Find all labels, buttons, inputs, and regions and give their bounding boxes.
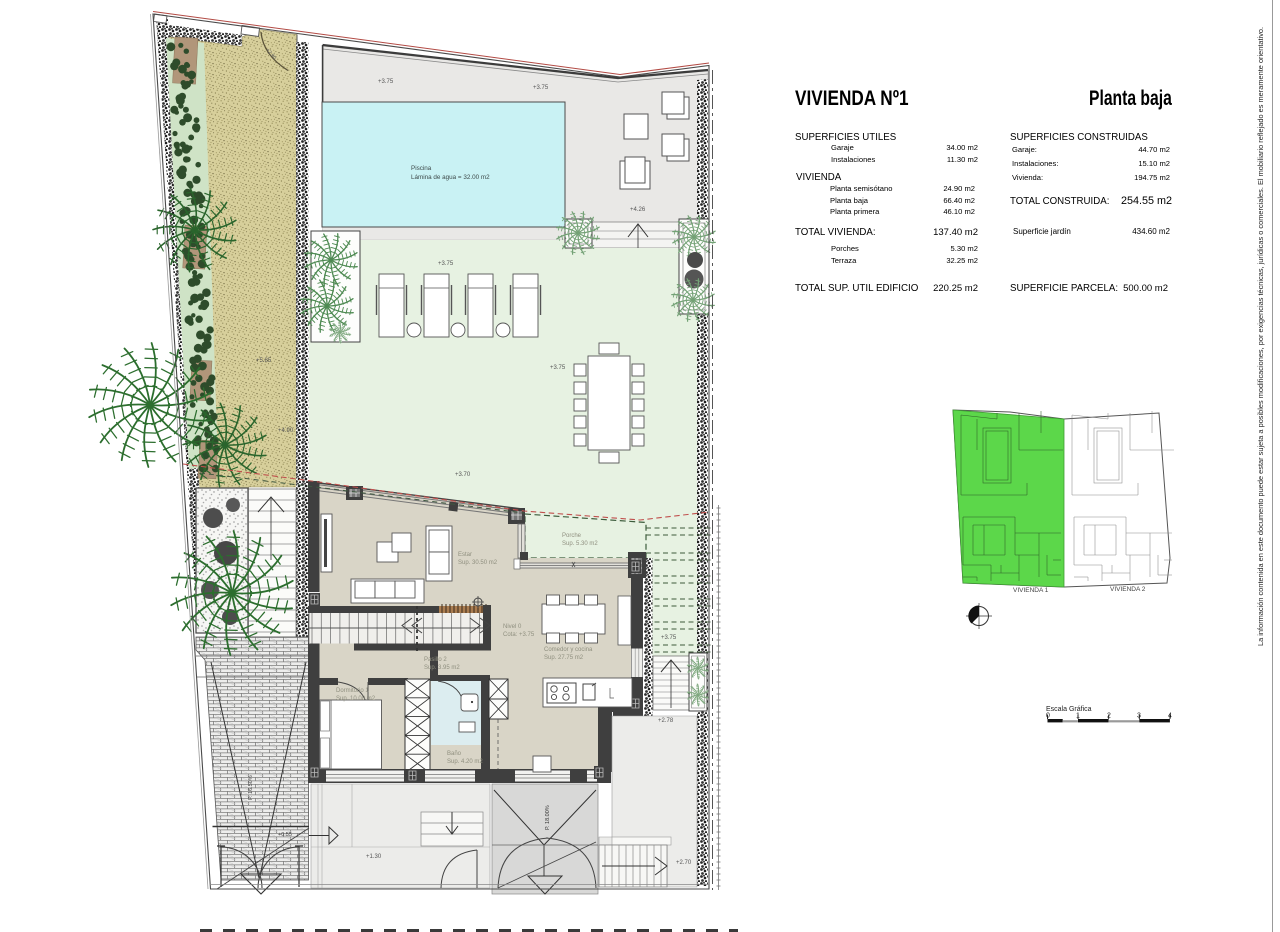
svg-text:VIVIENDA 2: VIVIENDA 2 — [1110, 586, 1146, 593]
svg-text:Superficie jardín: Superficie jardín — [1013, 227, 1071, 236]
svg-text:+3.70: +3.70 — [455, 472, 471, 478]
svg-text:+0.55: +0.55 — [278, 832, 292, 838]
svg-text:Terraza: Terraza — [831, 256, 857, 265]
svg-text:+4.26: +4.26 — [630, 207, 646, 213]
svg-text:Cota: +3.75: Cota: +3.75 — [503, 632, 535, 638]
svg-text:Sup. 3.95 m2: Sup. 3.95 m2 — [424, 665, 460, 671]
svg-text:VIVIENDA: VIVIENDA — [796, 172, 842, 183]
svg-text:+3.75: +3.75 — [550, 365, 566, 371]
svg-text:Garaje: Garaje — [831, 143, 854, 152]
svg-text:46.10 m2: 46.10 m2 — [943, 207, 975, 216]
svg-text:Vivienda:: Vivienda: — [1012, 173, 1043, 182]
svg-text:P. 16.50%: P. 16.50% — [248, 775, 254, 800]
svg-text:Porches: Porches — [831, 244, 859, 253]
svg-text:+1.30: +1.30 — [366, 854, 382, 860]
svg-text:SUPERFICIES CONSTRUIDAS: SUPERFICIES CONSTRUIDAS — [1010, 132, 1148, 143]
svg-text:434.60 m2: 434.60 m2 — [1132, 227, 1170, 236]
svg-text:P. 18.00%: P. 18.00% — [545, 805, 551, 830]
svg-text:5.30 m2: 5.30 m2 — [951, 244, 978, 253]
svg-text:Sup. 27.75 m2: Sup. 27.75 m2 — [544, 655, 584, 661]
svg-text:TOTAL SUP. UTIL EDIFICIO: TOTAL SUP. UTIL EDIFICIO — [795, 283, 919, 294]
svg-text:+3.75: +3.75 — [438, 261, 454, 267]
svg-text:+5.85: +5.85 — [256, 358, 272, 364]
svg-text:Sup. 10.00 m2: Sup. 10.00 m2 — [336, 696, 376, 702]
svg-text:44.70 m2: 44.70 m2 — [1138, 145, 1170, 154]
svg-text:+4.90: +4.90 — [278, 428, 294, 434]
svg-text:La información contenida en es: La información contenida en este documen… — [1256, 27, 1265, 646]
svg-text:Sup. 4.20 m2: Sup. 4.20 m2 — [447, 759, 483, 765]
svg-text:Instalaciones:: Instalaciones: — [1012, 159, 1058, 168]
svg-text:VIVIENDA Nº1: VIVIENDA Nº1 — [795, 86, 909, 110]
svg-text:11.30 m2: 11.30 m2 — [947, 155, 978, 164]
svg-text:Porche: Porche — [562, 533, 582, 539]
svg-text:+2.78: +2.78 — [658, 718, 674, 724]
svg-text:220.25 m2: 220.25 m2 — [933, 283, 978, 294]
svg-text:VIVIENDA 1: VIVIENDA 1 — [1013, 587, 1049, 594]
svg-text:Baño: Baño — [447, 751, 462, 757]
svg-text:Piscina: Piscina — [411, 165, 432, 172]
svg-text:Escala Gráfica: Escala Gráfica — [1046, 706, 1092, 713]
svg-text:Sup. 30.50 m2: Sup. 30.50 m2 — [458, 560, 498, 566]
svg-text:Garaje:: Garaje: — [1012, 145, 1037, 154]
svg-text:Instalaciones: Instalaciones — [831, 155, 876, 164]
svg-text:Sup. 5.30 m2: Sup. 5.30 m2 — [562, 541, 598, 547]
svg-text:Pasillo 2: Pasillo 2 — [424, 657, 447, 663]
svg-text:Planta semisótano: Planta semisótano — [830, 184, 892, 193]
svg-text:500.00 m2: 500.00 m2 — [1123, 283, 1168, 294]
svg-text:SUPERFICIES UTILES: SUPERFICIES UTILES — [795, 132, 897, 143]
svg-text:+3.75: +3.75 — [661, 635, 677, 641]
svg-text:Planta baja: Planta baja — [830, 196, 869, 205]
svg-text:15.10 m2: 15.10 m2 — [1138, 159, 1170, 168]
svg-text:+2.70: +2.70 — [676, 860, 692, 866]
svg-text:TOTAL VIVIENDA:: TOTAL VIVIENDA: — [795, 227, 876, 238]
svg-text:Estar: Estar — [458, 552, 472, 558]
svg-text:194.75 m2: 194.75 m2 — [1134, 173, 1170, 182]
svg-text:Planta baja: Planta baja — [1089, 86, 1172, 110]
svg-text:+3.75: +3.75 — [378, 79, 394, 85]
svg-text:Nivel 0: Nivel 0 — [503, 624, 522, 630]
svg-text:24.90 m2: 24.90 m2 — [943, 184, 975, 193]
svg-text:+3.75: +3.75 — [533, 85, 549, 91]
svg-text:254.55 m2: 254.55 m2 — [1121, 195, 1172, 207]
svg-text:Dormitorio 1: Dormitorio 1 — [336, 688, 369, 694]
svg-text:137.40 m2: 137.40 m2 — [933, 227, 978, 238]
svg-text:Planta primera: Planta primera — [830, 207, 880, 216]
svg-text:66.40 m2: 66.40 m2 — [943, 196, 975, 205]
svg-text:32.25 m2: 32.25 m2 — [946, 256, 978, 265]
svg-text:Lámina de agua = 32.00 m2: Lámina de agua = 32.00 m2 — [411, 174, 490, 181]
svg-text:34.00 m2: 34.00 m2 — [946, 143, 978, 152]
svg-text:SUPERFICIE PARCELA:: SUPERFICIE PARCELA: — [1010, 283, 1118, 294]
svg-text:Comedor y cocina: Comedor y cocina — [544, 647, 593, 653]
svg-text:TOTAL CONSTRUIDA:: TOTAL CONSTRUIDA: — [1010, 196, 1109, 207]
svg-text:0: 0 — [1046, 713, 1050, 720]
